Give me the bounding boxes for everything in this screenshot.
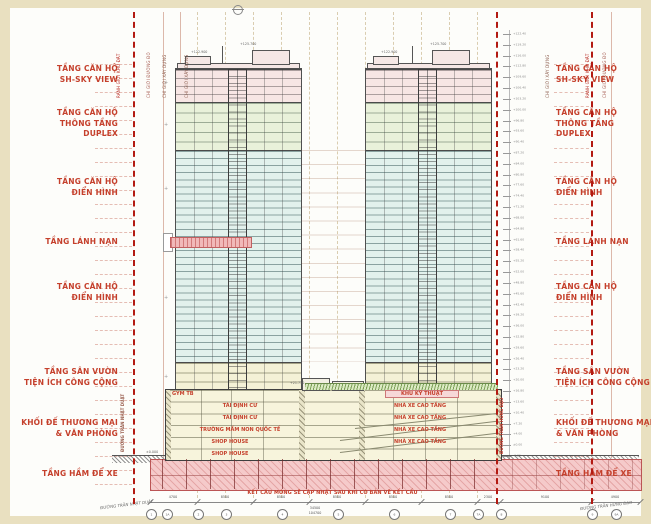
basement-column — [354, 459, 355, 489]
basement-column — [282, 459, 283, 489]
basement-column — [450, 459, 451, 489]
leader-line-left — [95, 414, 132, 415]
level-tick — [503, 283, 511, 284]
zone-label-right-duplex: TẦNG CĂN HỘTHÔNG TẦNGDUPLEX — [556, 108, 651, 140]
tower2-core-shaft — [418, 69, 437, 390]
leader-line-right — [554, 442, 589, 443]
leader-line-right — [554, 92, 589, 93]
room-label-parking-4: NHÀ XE CAO TẦNG — [370, 439, 470, 445]
boundary-label-buildline-left-1: CHỈ GIỚI XÂY DỰNG — [162, 12, 167, 98]
room-label-gym: GYM TB — [172, 391, 194, 397]
grid-horizontal-gap — [300, 150, 365, 362]
podium-partition — [263, 390, 264, 460]
leader-line-left — [95, 344, 132, 345]
level-tick — [503, 391, 511, 392]
tower1-mast — [222, 46, 223, 63]
leader-line-right — [554, 204, 589, 205]
level-elevation-label: +122.40 — [513, 32, 526, 36]
grid-bubble-label: 2 — [196, 512, 201, 517]
grid-bubble: 6 — [389, 509, 400, 520]
tower2-partition — [384, 69, 385, 390]
tower2-roof-penthouse — [432, 50, 470, 65]
tower2-partition — [472, 69, 473, 390]
leader-line-left — [95, 106, 132, 107]
level-elevation-label: +103.20 — [513, 97, 526, 101]
leader-line-right — [554, 148, 589, 149]
level-elevation-label: +13.60 — [513, 400, 524, 404]
level-elevation-label: +42.40 — [513, 303, 524, 307]
level-elevation-label: +29.60 — [513, 346, 524, 350]
leader-line-right — [554, 414, 589, 415]
leader-line-right — [554, 232, 589, 233]
level-elevation-label: +20.00 — [513, 378, 524, 382]
room-label-technical: KHU KỸ THUẬT — [385, 390, 459, 398]
level-elevation-label: +32.80 — [513, 335, 524, 339]
architectural-section-sheet: RANH GIỚI KHU ĐẤT CHỈ GIỚI ĐƯỜNG ĐỎ CHỈ … — [0, 0, 651, 524]
level-tick — [503, 250, 511, 251]
leader-line-right — [554, 274, 589, 275]
boundary-label-site-left: RANH GIỚI KHU ĐẤT — [116, 12, 121, 98]
level-elevation-label: +52.00 — [513, 270, 524, 274]
level-tick — [503, 207, 511, 208]
level-tick — [503, 131, 511, 132]
zone-label-right-basement: TẦNG HẦM ĐỂ XE — [556, 469, 651, 480]
basement-column — [234, 459, 235, 489]
tower1-partition — [212, 69, 213, 390]
level-elevation-label: +58.40 — [513, 248, 524, 252]
podium-partition — [231, 390, 232, 460]
dimension-value: 4900 — [606, 495, 625, 499]
level-tick — [503, 261, 511, 262]
level-tick — [503, 218, 511, 219]
podium-partition — [393, 390, 394, 460]
level-plus-mark: + — [164, 295, 168, 301]
room-label-kindergarten: TRƯỜNG MẦM NON QUỐC TẾ — [170, 427, 310, 433]
grid-bubble-label: 7A — [476, 512, 481, 517]
grid-bubble-label: 6 — [392, 512, 397, 517]
level-elevation-label: +87.20 — [513, 151, 524, 155]
tower2-roof-box — [373, 56, 399, 65]
level-tick — [503, 77, 511, 78]
basement-column — [378, 459, 379, 489]
leader-line-left — [95, 92, 132, 93]
level-elevation-label: +55.20 — [513, 259, 524, 263]
basement-column — [330, 459, 331, 489]
grid-bubble: 7 — [445, 509, 456, 520]
basement-column — [474, 459, 475, 489]
leader-line-left — [95, 330, 132, 331]
zone-label-left-garden: TẦNG SÂN VƯỜNTIỆN ÍCH CÔNG CỘNG — [16, 367, 118, 388]
dimension-line — [150, 502, 640, 503]
zone-label-left-podium: KHỐI ĐẾ THƯƠNG MẠI& VĂN PHÒNG — [16, 418, 118, 439]
tower2-partition — [454, 69, 455, 390]
level-tick — [503, 142, 511, 143]
grid-bubble-label: 1A — [165, 512, 170, 517]
level-tick — [503, 164, 511, 165]
grid-bubble-label: 7 — [448, 512, 453, 517]
leader-line-left — [95, 484, 132, 485]
basement-column — [402, 459, 403, 489]
level-tick — [503, 56, 511, 57]
leader-line-left — [95, 162, 132, 163]
level-tick — [503, 121, 511, 122]
elevation-ground: ±0.000 — [146, 450, 158, 454]
grid-bubble: 1A — [162, 509, 173, 520]
leader-line-right — [554, 316, 589, 317]
level-elevation-label: +10.40 — [513, 411, 524, 415]
level-tick — [503, 66, 511, 67]
level-plus-mark: + — [164, 186, 168, 192]
leader-line-left — [95, 442, 132, 443]
level-elevation-label: +48.80 — [513, 281, 524, 285]
level-tick — [503, 229, 511, 230]
level-elevation-label: +84.00 — [513, 162, 524, 166]
room-label-shophouse-1: SHOP HOUSE — [175, 439, 285, 445]
level-tick — [503, 196, 511, 197]
basement-column — [186, 459, 187, 489]
level-tick — [503, 413, 511, 414]
street-name-left: ĐƯỜNG TRẦN NHẬT DUẬT — [120, 386, 125, 452]
level-tick — [503, 110, 511, 111]
zone-label-right-typical-2: TẦNG CĂN HỘĐIỂN HÌNH — [556, 282, 651, 303]
tower2-mast — [412, 46, 413, 63]
leader-line-right — [554, 344, 589, 345]
foundation-note: KẾT CẤU MÓNG SẼ CẬP NHẬT SAU KHI CÓ BẢN … — [165, 490, 500, 496]
grid-bubble-label: 1 — [149, 512, 154, 517]
leader-line-right — [554, 218, 589, 219]
level-elevation-label: ±0.00 — [513, 443, 522, 447]
level-plus-mark: + — [164, 374, 168, 380]
dimension-value: 9100 — [536, 495, 555, 499]
boundary-label-buildline-left-2: CHỈ GIỚI XÂY DỰNG — [184, 12, 189, 98]
level-elevation-label: +112.80 — [513, 64, 526, 68]
grid-bubble-label: 9 — [590, 512, 595, 517]
leader-line-left — [95, 274, 132, 275]
leader-line-left — [95, 400, 132, 401]
level-elevation-label: +68.00 — [513, 216, 524, 220]
zone-label-left-sh-sky-view: TẦNG CĂN HỘSH-SKY VIEW — [16, 64, 118, 85]
room-label-parking-1: NHÀ XE CAO TẦNG — [370, 403, 470, 409]
level-elevation-label: +61.60 — [513, 238, 524, 242]
zone-label-left-basement: TẦNG HẦM ĐỂ XE — [16, 469, 118, 480]
level-tick — [503, 88, 511, 89]
leader-line-right — [554, 330, 589, 331]
boundary-label-buildline-right: CHỈ GIỚI XÂY DỰNG — [545, 12, 550, 98]
basement-column — [162, 459, 163, 489]
level-tick — [503, 424, 511, 425]
level-tick — [503, 272, 511, 273]
level-tick — [503, 305, 511, 306]
level-tick — [503, 175, 511, 176]
basement-column — [426, 459, 427, 489]
leader-line-right — [554, 358, 589, 359]
grid-bubble: 3 — [221, 509, 232, 520]
grid-bubble: 9 — [587, 509, 598, 520]
level-elevation-label: +74.40 — [513, 194, 524, 198]
level-tick — [503, 185, 511, 186]
level-tick — [503, 348, 511, 349]
boundary-label-redline-right: CHỈ GIỚI ĐƯỜNG ĐỎ — [602, 12, 607, 98]
podium-partition — [425, 390, 426, 460]
basement-column-light — [512, 459, 513, 489]
room-label-shophouse-2: SHOP HOUSE — [175, 451, 285, 457]
level-tick — [503, 380, 511, 381]
leader-line-left — [95, 218, 132, 219]
site-boundary-line-left — [133, 12, 135, 504]
podium-wall-hatch — [299, 390, 305, 460]
level-elevation-label: +71.20 — [513, 205, 524, 209]
zone-label-left-refuge: TẦNG LÁNH NẠN — [16, 237, 118, 248]
grid-bubble-label: 9A — [614, 512, 619, 517]
grid-bubble-label: 8 — [499, 512, 504, 517]
tower2-partition — [402, 69, 403, 390]
leader-line-left — [95, 316, 132, 317]
podium-partition — [201, 390, 202, 460]
level-elevation-label: +109.60 — [513, 75, 526, 79]
elevation-peak-t2: +125.700 — [430, 42, 446, 46]
boundary-label-redline-left: CHỈ GIỚI ĐƯỜNG ĐỎ — [146, 12, 151, 98]
level-elevation-label: +77.60 — [513, 183, 524, 187]
level-elevation-label: +4.00 — [513, 432, 522, 436]
elevation-roof-t2: +122.900 — [381, 50, 397, 54]
leader-line-right — [554, 162, 589, 163]
leader-line-left — [95, 204, 132, 205]
tower1-core-mid — [237, 69, 238, 390]
level-elevation-label: +96.80 — [513, 119, 524, 123]
grid-bubble: 7A — [473, 509, 484, 520]
room-label-parking-2: NHÀ XE CAO TẦNG — [370, 415, 470, 421]
level-tick — [503, 337, 511, 338]
room-label-resettlement-2: TÁI ĐỊNH CƯ — [180, 415, 300, 421]
zone-label-right-podium: KHỐI ĐẾ THƯƠNG MẠI& VĂN PHÒNG — [556, 418, 651, 439]
grid-bubble: 9A — [611, 509, 622, 520]
level-tick — [503, 315, 511, 316]
basement-column-light — [536, 459, 537, 489]
leader-line-left — [95, 358, 132, 359]
tower1-partition — [194, 69, 195, 390]
level-tick — [503, 34, 511, 35]
grid-bubble: 8 — [496, 509, 507, 520]
level-elevation-label: +106.40 — [513, 86, 526, 90]
level-elevation-label: +80.80 — [513, 173, 524, 177]
level-elevation-label: +45.60 — [513, 292, 524, 296]
level-elevation-label: +119.20 — [513, 43, 526, 47]
elevation-peak-t1: +125.700 — [240, 42, 256, 46]
level-elevation-label: +7.20 — [513, 422, 522, 426]
tower-2-section — [365, 68, 492, 391]
leader-line-right — [554, 260, 589, 261]
boundary-label-site-right: RANH GIỚI KHU ĐẤT — [585, 12, 590, 98]
level-tick — [503, 99, 511, 100]
basement-column — [210, 459, 211, 489]
level-tick — [503, 294, 511, 295]
level-tick — [503, 153, 511, 154]
zone-label-right-typical-1: TẦNG CĂN HỘĐIỂN HÌNH — [556, 177, 651, 198]
grid-bubble: 2 — [193, 509, 204, 520]
level-elevation-label: +23.20 — [513, 367, 524, 371]
level-tick — [503, 240, 511, 241]
level-tick — [503, 369, 511, 370]
refuge-floor-band — [170, 237, 252, 248]
tower1-roof-penthouse — [252, 50, 290, 65]
leader-line-right — [554, 400, 589, 401]
level-elevation-label: +64.80 — [513, 227, 524, 231]
tower-1-section — [175, 68, 302, 391]
zone-label-right-garden: TẦNG SÂN VƯỜNTIỆN ÍCH CÔNG CỘNG — [556, 367, 651, 388]
leader-line-left — [95, 148, 132, 149]
tower1-partition — [282, 69, 283, 390]
site-boundary-line-right — [496, 12, 498, 504]
tower1-core-shaft — [228, 69, 247, 390]
zone-label-right-refuge: TẦNG LÁNH NẠN — [556, 237, 651, 248]
room-label-resettlement-1: TÁI ĐỊNH CƯ — [180, 403, 300, 409]
zone-label-left-duplex: TẦNG CĂN HỘTHÔNG TẦNGDUPLEX — [16, 108, 118, 140]
podium-roof-garden — [305, 383, 498, 390]
level-elevation-label: +90.40 — [513, 140, 524, 144]
level-elevation-label: +39.20 — [513, 313, 524, 317]
grid-bubble: 1 — [146, 509, 157, 520]
room-label-parking-3: NHÀ XE CAO TẦNG — [370, 427, 470, 433]
leader-line-left — [95, 260, 132, 261]
level-tick — [503, 434, 511, 435]
level-tick — [503, 326, 511, 327]
level-elevation-label: +36.00 — [513, 324, 524, 328]
elevation-roof-t1: +122.900 — [191, 50, 207, 54]
level-tick — [503, 402, 511, 403]
section-mark-icon — [233, 5, 243, 15]
level-tick — [503, 359, 511, 360]
street-name-right: ĐƯỜNG TRẦN HƯNG ĐẠO — [499, 384, 504, 454]
grid-bubble-label: 5 — [336, 512, 341, 517]
grid-bubble-label: 3 — [224, 512, 229, 517]
podium-wall-hatch — [166, 390, 171, 460]
leader-line-left — [95, 232, 132, 233]
tower2-core-mid — [427, 69, 428, 390]
zone-label-left-typical-1: TẦNG CĂN HỘĐIỂN HÌNH — [16, 177, 118, 198]
basement-column — [306, 459, 307, 489]
level-tick — [503, 445, 511, 446]
elevation-podium-top: +21.750 — [290, 381, 304, 385]
zone-label-left-typical-2: TẦNG CĂN HỘĐIỂN HÌNH — [16, 282, 118, 303]
road-boundary-line-right — [591, 12, 593, 504]
level-elevation-label: +26.40 — [513, 357, 524, 361]
level-tick — [503, 45, 511, 46]
level-elevation-label: +116.00 — [513, 54, 526, 58]
leader-line-right — [554, 106, 589, 107]
level-elevation-label: +100.00 — [513, 108, 526, 112]
level-elevation-label: +16.80 — [513, 389, 524, 393]
grid-bubble: 5 — [333, 509, 344, 520]
grid-bubble: 4 — [277, 509, 288, 520]
level-plus-mark: + — [164, 122, 168, 128]
level-elevation-label: +93.60 — [513, 129, 524, 133]
grid-bubble-label: 4 — [280, 512, 285, 517]
basement-column — [258, 459, 259, 489]
tower1-partition — [264, 69, 265, 390]
